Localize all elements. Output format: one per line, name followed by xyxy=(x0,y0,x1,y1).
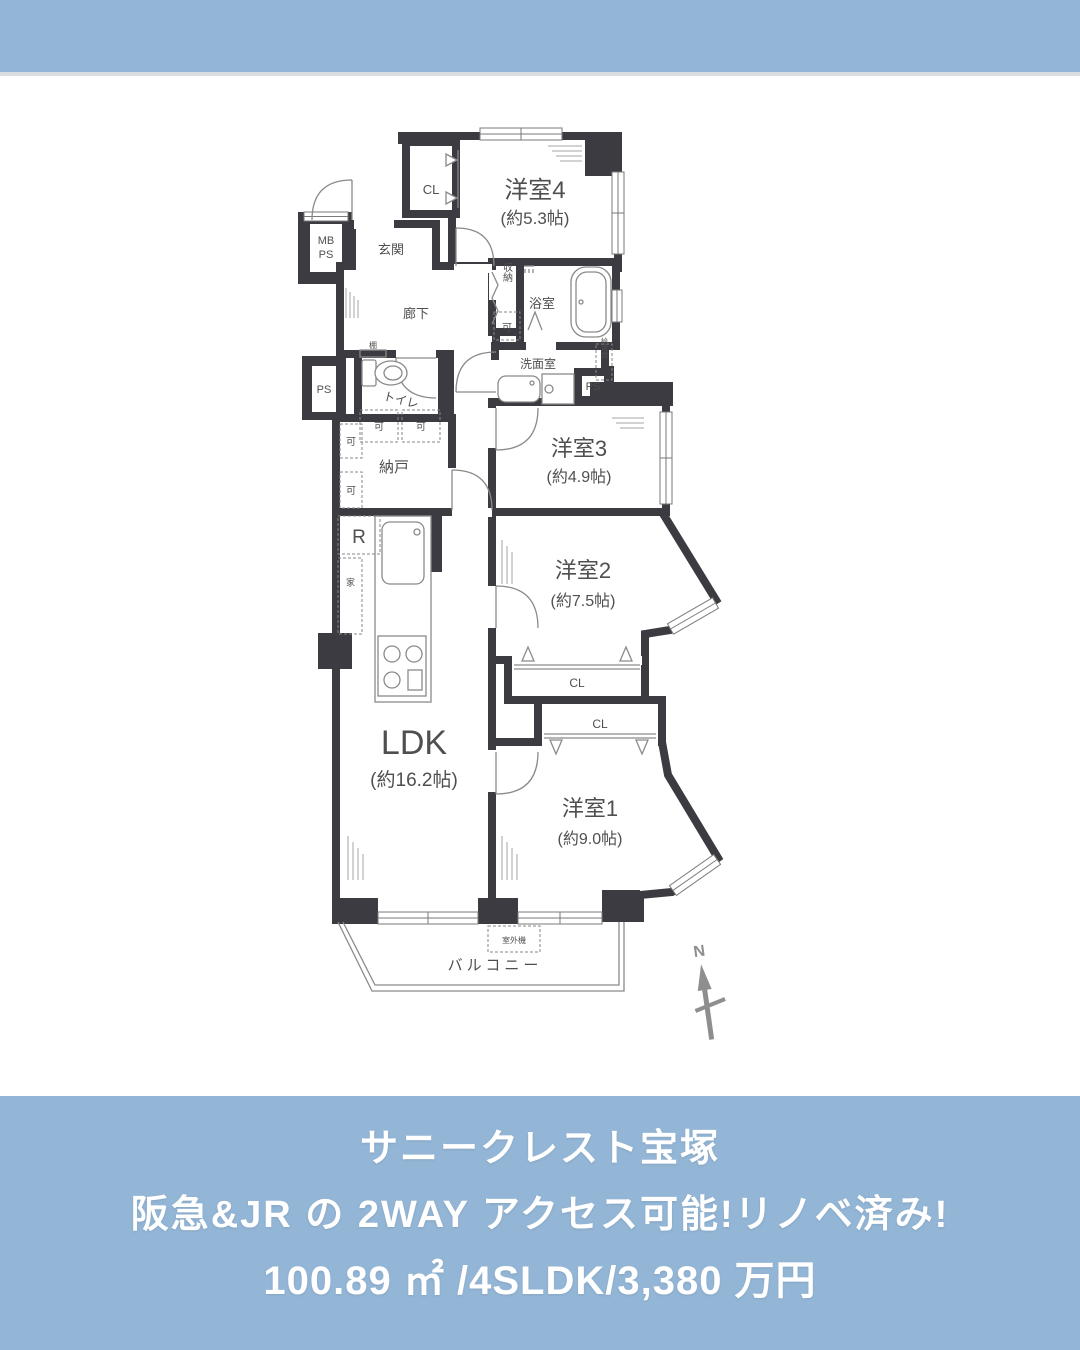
room1-name: 洋室1 xyxy=(562,796,618,821)
north-label: N xyxy=(692,943,706,961)
property-catch-copy: 阪急&JR の 2WAY アクセス可能!リノベ済み! xyxy=(0,1182,1080,1248)
movable-label-3: 可 xyxy=(346,437,356,448)
rouka-label: 廊下 xyxy=(403,306,429,321)
movable-label-1: 可 xyxy=(374,422,384,433)
room2-size: (約7.5帖) xyxy=(551,592,616,610)
ps-label-mb: PS xyxy=(319,249,334,261)
room1-size: (約9.0帖) xyxy=(558,830,623,848)
ps-right-label: PS xyxy=(586,381,601,393)
storage-label: 収納 xyxy=(501,262,513,283)
closet1-label: CL xyxy=(592,717,608,731)
rooms xyxy=(306,136,718,918)
movable-label-5: 可 xyxy=(502,323,512,334)
mb-label: MB xyxy=(318,235,335,247)
property-specs: 100.89 ㎡ /4SLDK/3,380 万円 xyxy=(0,1248,1080,1314)
room3-size: (約4.9帖) xyxy=(547,468,612,486)
floor-plan: N CL 洋室4 (約5.3帖) MB PS 玄関 廊下 収納 浴室 洗面室 給… xyxy=(290,118,770,1062)
top-border-seam xyxy=(0,72,1080,76)
washroom-label: 洗面室 xyxy=(520,356,556,371)
shelf-label: 棚 xyxy=(369,340,377,350)
nando-label: 納戸 xyxy=(379,459,409,476)
movable-label-2: 可 xyxy=(416,422,426,433)
compass-shaft xyxy=(702,986,714,1040)
room4-name: 洋室4 xyxy=(504,177,565,204)
water-heater-label: 給湯器 xyxy=(601,337,609,360)
washer-pan xyxy=(542,374,574,404)
bathroom-label: 浴室 xyxy=(529,296,555,311)
room4-size: (約5.3帖) xyxy=(501,209,570,228)
ps-left-label: PS xyxy=(317,384,332,396)
room-yoshitsu2-floor xyxy=(492,512,716,660)
outdoor-unit-label: 室外機 xyxy=(502,935,526,945)
room2-name: 洋室2 xyxy=(555,558,611,583)
ldk-size: (約16.2帖) xyxy=(370,769,458,791)
caption-panel: サニークレスト宝塚 阪急&JR の 2WAY アクセス可能!リノベ済み! 100… xyxy=(0,1096,1080,1350)
furniture-label: 家 xyxy=(345,576,355,586)
north-compass: N xyxy=(686,941,731,1042)
top-border xyxy=(0,0,1080,72)
closet2-label: CL xyxy=(569,676,585,690)
movable-label-4: 可 xyxy=(346,486,356,497)
compass-crossbar xyxy=(695,997,726,1013)
ldk-name: LDK xyxy=(381,724,447,762)
closet4-label: CL xyxy=(423,182,440,197)
toilet-tank xyxy=(362,360,376,386)
property-name: サニークレスト宝塚 xyxy=(0,1116,1080,1182)
balcony-label: バルコニー xyxy=(448,957,543,974)
kitchen-sink xyxy=(382,522,424,584)
wash-basin xyxy=(498,376,540,402)
stove xyxy=(378,636,426,696)
refrigerator-label: R xyxy=(352,527,366,548)
genkan-label: 玄関 xyxy=(378,242,404,257)
room3-name: 洋室3 xyxy=(551,436,607,461)
